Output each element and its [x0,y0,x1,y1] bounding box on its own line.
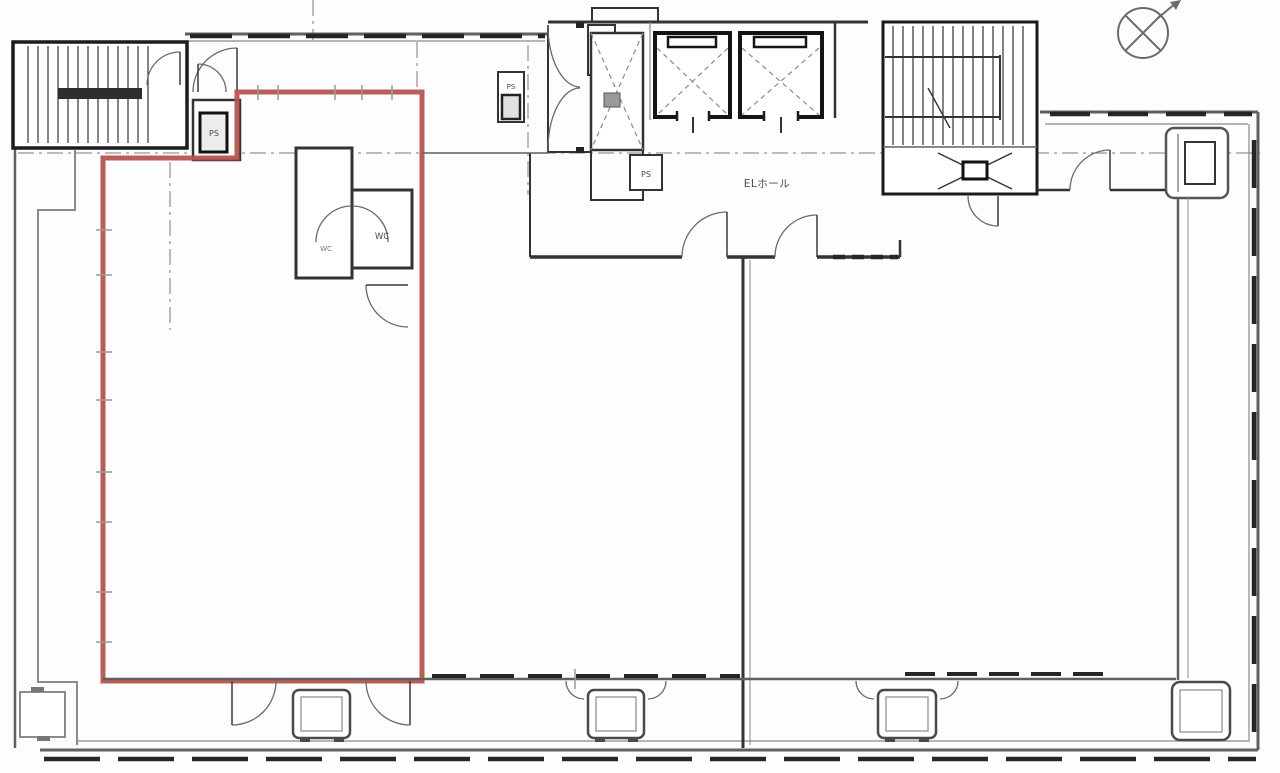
bottom-strip [20,669,1230,742]
wc-label-b: WC [375,232,389,242]
ps-entry-label: PS [209,129,219,138]
planter-box [20,687,65,741]
floor-plan: PS WC WC PS [0,0,1280,773]
wc-label-a: WC [320,245,332,253]
ps-shaft-corridor: PS [498,72,524,122]
elevator-1 [655,33,730,133]
wc-room-b [352,190,412,268]
stair-landing-bar [58,88,142,99]
elevator-hall-label: ELホール [744,178,790,190]
water-heater-unit [1166,128,1228,198]
ps-shaft-entry: PS [193,100,240,160]
ps-core-label: PS [641,170,651,179]
top-right-corridor [1037,128,1228,680]
wc-cluster: WC WC [296,148,412,327]
ps-corridor-label: PS [507,83,516,91]
north-arrow-icon [1118,0,1181,58]
ac-unit-1 [293,690,350,742]
balcony-door-arc [232,681,276,725]
ac-unit-4 [1172,682,1230,740]
unit-divider-wall [743,257,750,748]
highlighted-unit-outline [103,92,422,681]
elevator-2 [740,33,822,133]
left-stairwell [13,42,187,148]
right-stairwell [883,22,1037,226]
floor-plan-canvas: PS WC WC PS [0,0,1280,773]
ac-unit-3 [878,690,936,742]
wc-room-a [296,148,352,278]
unit-entry-doors [193,48,237,92]
ac-unit-2 [588,690,644,742]
highlighted-unit [96,85,422,681]
